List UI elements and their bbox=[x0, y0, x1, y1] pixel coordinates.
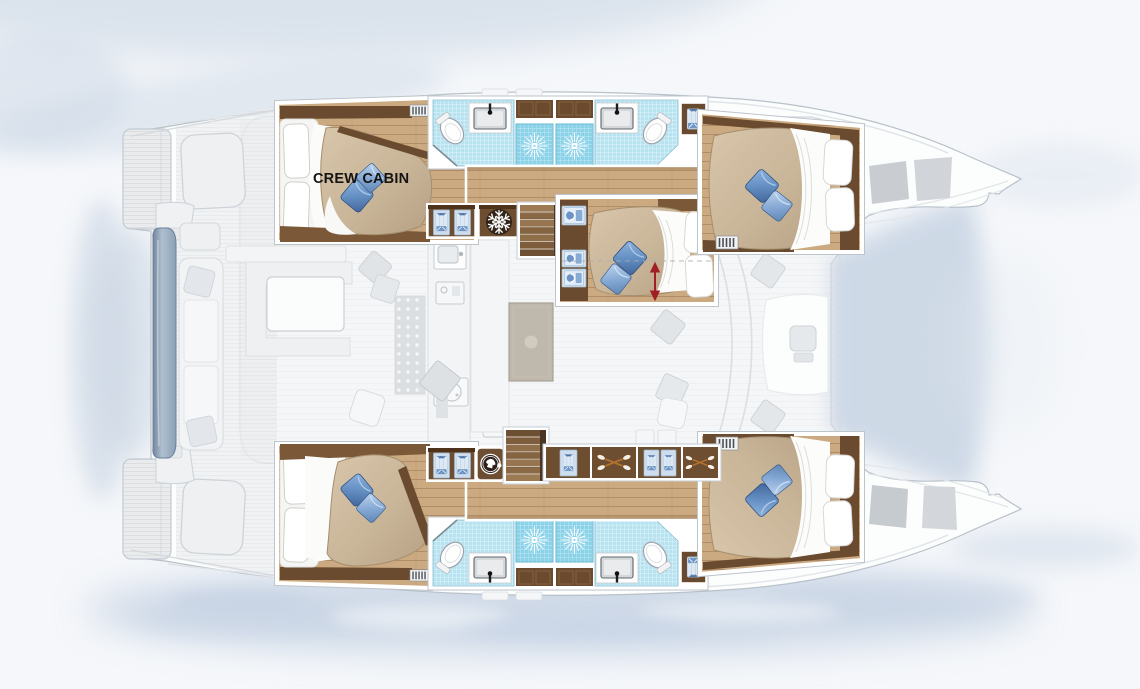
svg-text:CREW CABIN: CREW CABIN bbox=[313, 171, 409, 187]
